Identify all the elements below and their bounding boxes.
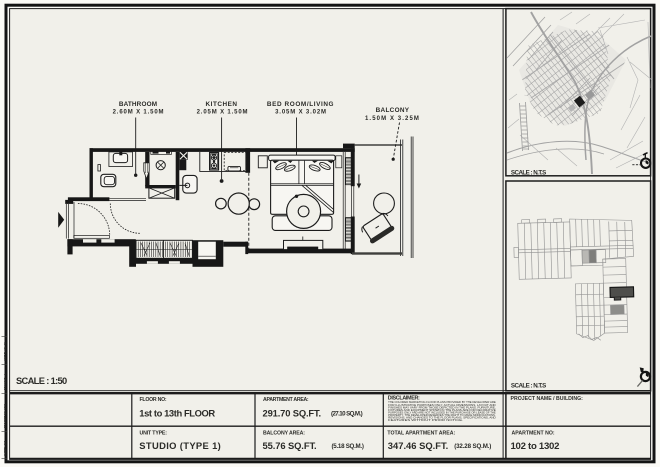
svg-text:UNIT PLAN . 05: UNIT PLAN . 05 bbox=[3, 342, 7, 361]
svg-text:BALCONY AREA:: BALCONY AREA: bbox=[263, 431, 305, 437]
svg-text:(27.10 SQ.M.): (27.10 SQ.M.) bbox=[331, 410, 363, 417]
svg-text:KITCHEN: KITCHEN bbox=[206, 101, 238, 108]
svg-text:(5.18 SQ.M.): (5.18 SQ.M.) bbox=[332, 443, 364, 450]
svg-text:FLOOR NO:: FLOOR NO: bbox=[140, 397, 167, 403]
svg-text:102 to 1302: 102 to 1302 bbox=[511, 441, 560, 452]
svg-text:2.60M X 1.50M: 2.60M X 1.50M bbox=[113, 110, 165, 116]
svg-text:1st to 13th FLOOR: 1st to 13th FLOOR bbox=[139, 408, 215, 419]
svg-text:FOR ILLUSTRATIVE PURPOSES ONLY: FOR ILLUSTRATIVE PURPOSES ONLY. ACTUAL D… bbox=[388, 404, 496, 407]
svg-text:PROJECT NAME / BUILDING:: PROJECT NAME / BUILDING: bbox=[511, 396, 584, 402]
svg-text:REVISIONS, AND CHANGES TO THE: REVISIONS, AND CHANGES TO THE FLOOR PLAN… bbox=[388, 417, 496, 420]
svg-text:291.70 SQ.FT.: 291.70 SQ.FT. bbox=[263, 408, 322, 419]
svg-text:SHEET . 102: SHEET . 102 bbox=[3, 440, 7, 456]
svg-text:STUDIO (TYPE 1): STUDIO (TYPE 1) bbox=[139, 440, 221, 451]
svg-text:FIXTURES AND EQUIPMENT SHOWN I: FIXTURES AND EQUIPMENT SHOWN IN THE PLAN… bbox=[388, 409, 496, 412]
svg-text:PROJECT NO. 1802: PROJECT NO. 1802 bbox=[3, 403, 7, 428]
svg-text:1.50M X 3.25M: 1.50M X 3.25M bbox=[365, 116, 420, 122]
svg-text:TOTAL APARTMENT AREA:: TOTAL APARTMENT AREA: bbox=[387, 430, 455, 436]
svg-text:3.05M X 3.02M: 3.05M X 3.02M bbox=[275, 110, 327, 116]
svg-text:THE COLORED MARKETING FLOOR PL: THE COLORED MARKETING FLOOR PLANS PROVID… bbox=[388, 401, 496, 404]
svg-text:APARTMENT NO:: APARTMENT NO: bbox=[512, 431, 555, 437]
svg-text:PURPOSES ONLY AND ARE NOT INCL: PURPOSES ONLY AND ARE NOT INCLUDED IN TH… bbox=[388, 411, 496, 414]
svg-text:BED ROOM/LIVING: BED ROOM/LIVING bbox=[267, 101, 334, 108]
svg-text:SCALE : 1:50: SCALE : 1:50 bbox=[16, 376, 67, 386]
svg-text:SCALE : N.T.S: SCALE : N.T.S bbox=[511, 169, 546, 176]
svg-text:UNIT TYPE:: UNIT TYPE: bbox=[140, 431, 168, 437]
svg-text:DRAWING . A: DRAWING . A bbox=[3, 373, 7, 390]
svg-text:SCALE : N.T.S: SCALE : N.T.S bbox=[511, 383, 546, 390]
svg-text:DISCLAIMER:: DISCLAIMER: bbox=[388, 396, 420, 402]
svg-text:2.05M X 1.50M: 2.05M X 1.50M bbox=[197, 110, 249, 116]
svg-text:(32.28 SQ.M.): (32.28 SQ.M.) bbox=[454, 443, 491, 450]
svg-text:FEATURES WITHOUT PRIOR NOTICE.: FEATURES WITHOUT PRIOR NOTICE. bbox=[388, 419, 464, 422]
svg-text:347.46 SQ.FT.: 347.46 SQ.FT. bbox=[388, 440, 448, 451]
svg-text:BALCONY: BALCONY bbox=[376, 107, 410, 114]
svg-text:APARTMENT AREA:: APARTMENT AREA: bbox=[263, 397, 309, 403]
svg-text:BATHROOM: BATHROOM bbox=[119, 101, 157, 108]
svg-text:55.76 SQ.FT.: 55.76 SQ.FT. bbox=[263, 440, 317, 451]
svg-text:FINISHES MAY VARY FROM THOSE D: FINISHES MAY VARY FROM THOSE DEPICTED IN… bbox=[388, 406, 496, 409]
svg-text:PROPERTY. THE DEVELOPER RESERV: PROPERTY. THE DEVELOPER RESERVES THE RIG… bbox=[388, 414, 496, 417]
